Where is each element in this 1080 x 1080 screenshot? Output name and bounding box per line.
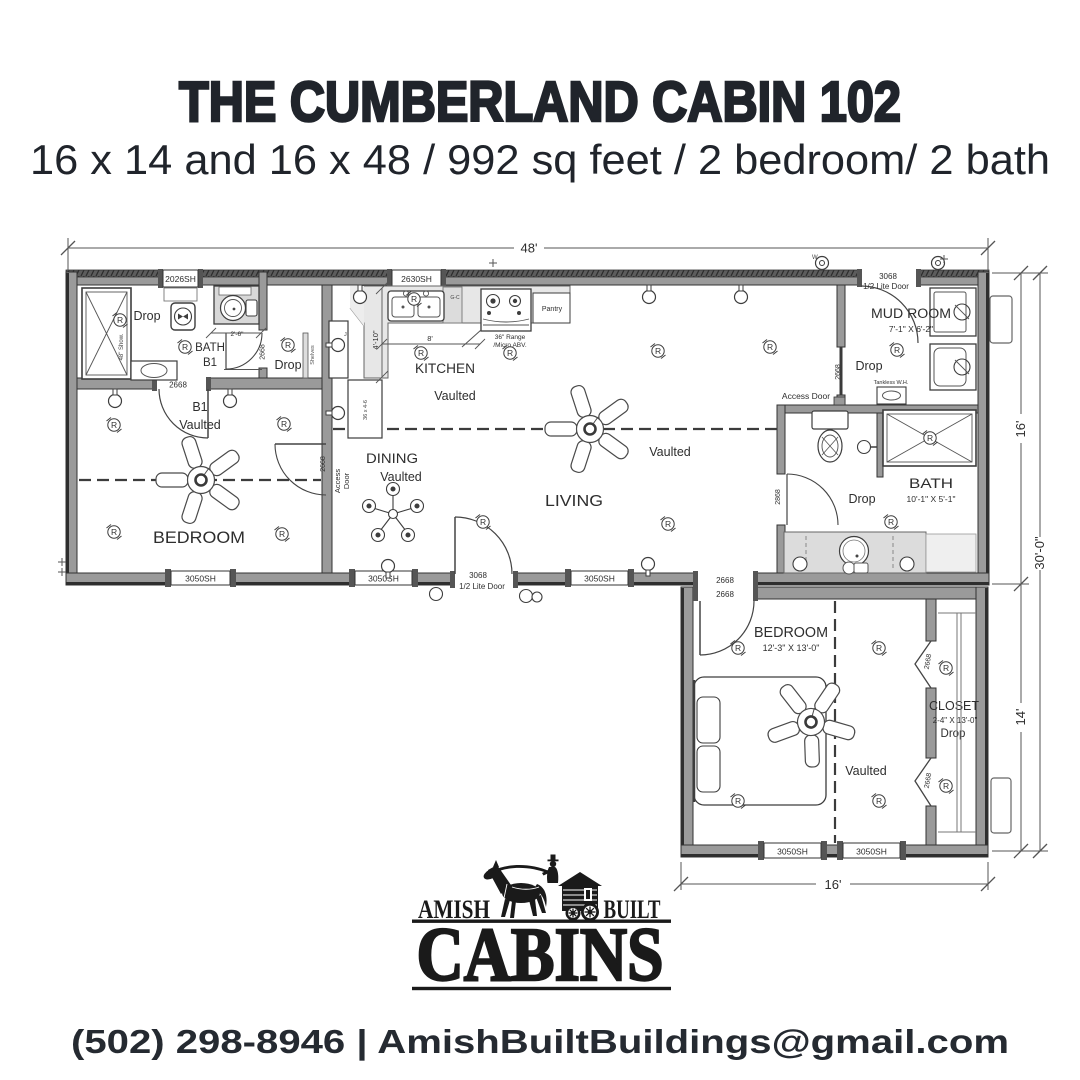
svg-text:3050SH: 3050SH (185, 574, 216, 584)
svg-text:16': 16' (825, 877, 842, 892)
svg-text:12'-3" X 13'-0": 12'-3" X 13'-0" (763, 643, 820, 653)
svg-text:DINING: DINING (366, 451, 418, 466)
svg-text:Drop: Drop (855, 359, 882, 373)
svg-text:CLOSET: CLOSET (929, 699, 979, 713)
svg-text:7'-1" X 6'-2": 7'-1" X 6'-2" (889, 324, 933, 334)
svg-text:1/2 Lite Door: 1/2 Lite Door (459, 582, 505, 591)
svg-text:2668: 2668 (169, 381, 187, 390)
svg-text:B1: B1 (192, 400, 207, 414)
svg-text:16 x 14 and 16 x 48 / 992 sq f: 16 x 14 and 16 x 48 / 992 sq feet / 2 be… (30, 136, 1050, 183)
svg-text:Vaulted: Vaulted (380, 470, 422, 484)
svg-text:Vaulted: Vaulted (649, 445, 691, 459)
svg-text:Vaulted: Vaulted (434, 389, 476, 403)
svg-text:Tankless W.H.: Tankless W.H. (874, 380, 909, 386)
svg-text:Drop: Drop (941, 728, 966, 740)
svg-text:2630SH: 2630SH (401, 274, 432, 284)
svg-text:BEDROOM: BEDROOM (153, 528, 245, 547)
svg-text:3068: 3068 (469, 571, 487, 580)
svg-text:Drop: Drop (274, 358, 301, 372)
svg-text:4'-10": 4'-10" (371, 330, 380, 349)
svg-text:Access Door: Access Door (782, 391, 830, 401)
svg-text:BATH: BATH (909, 476, 953, 491)
svg-text:36 x 4-6: 36 x 4-6 (363, 400, 369, 420)
svg-text:2668: 2668 (320, 456, 327, 472)
svg-text:2-4" X 13'-0": 2-4" X 13'-0" (933, 716, 978, 725)
svg-text:KITCHEN: KITCHEN (415, 361, 475, 376)
svg-text:Shelves: Shelves (310, 345, 316, 365)
svg-text:2668: 2668 (716, 590, 734, 599)
svg-text:3050SH: 3050SH (777, 847, 808, 857)
svg-text:BATH: BATH (195, 342, 225, 354)
svg-text:8': 8' (427, 334, 433, 343)
svg-text:3050SH: 3050SH (856, 847, 887, 857)
svg-text:3050SH: 3050SH (368, 574, 399, 584)
svg-text:1/2 Lite Door: 1/2 Lite Door (863, 282, 909, 291)
svg-text:2668: 2668 (716, 576, 734, 585)
svg-text:2'-6": 2'-6" (231, 331, 245, 338)
svg-text:48" Show.: 48" Show. (119, 333, 125, 360)
svg-text:2868: 2868 (775, 489, 782, 505)
svg-text:Drop: Drop (848, 492, 875, 506)
svg-text:(502) 298-8946 | AmishBuiltBui: (502) 298-8946 | AmishBuiltBuildings@gma… (71, 1023, 1009, 1060)
svg-text:Door: Door (342, 472, 351, 489)
svg-text:2668: 2668 (260, 344, 267, 360)
svg-text:G-C: G-C (450, 295, 460, 301)
svg-text:3068: 3068 (879, 272, 897, 281)
svg-text:Drop: Drop (133, 309, 160, 323)
svg-text:2668: 2668 (835, 364, 842, 380)
svg-text:Vaulted: Vaulted (845, 764, 887, 778)
svg-text:16': 16' (1013, 421, 1028, 438)
svg-text:36" Range: 36" Range (495, 334, 526, 341)
svg-text:CABINS: CABINS (417, 913, 664, 997)
svg-text:THE CUMBERLAND CABIN 102: THE CUMBERLAND CABIN 102 (179, 70, 901, 134)
svg-text:10'-1" X 5'-1": 10'-1" X 5'-1" (907, 494, 956, 504)
svg-text:48': 48' (521, 241, 538, 256)
svg-text:Access: Access (333, 469, 342, 493)
svg-text:BEDROOM: BEDROOM (754, 625, 828, 641)
svg-text:J: J (344, 332, 347, 338)
svg-text:Pantry: Pantry (542, 306, 563, 313)
svg-text:W: W (812, 255, 818, 261)
svg-text:Vaulted: Vaulted (179, 418, 221, 432)
svg-text:LIVING: LIVING (545, 493, 603, 510)
svg-text:30'-0": 30'-0" (1032, 536, 1047, 570)
svg-text:MUD ROOM: MUD ROOM (871, 306, 951, 321)
svg-text:2026SH: 2026SH (165, 274, 196, 284)
svg-text:3050SH: 3050SH (584, 574, 615, 584)
svg-text:14': 14' (1013, 709, 1028, 726)
svg-text:B1: B1 (203, 357, 217, 369)
